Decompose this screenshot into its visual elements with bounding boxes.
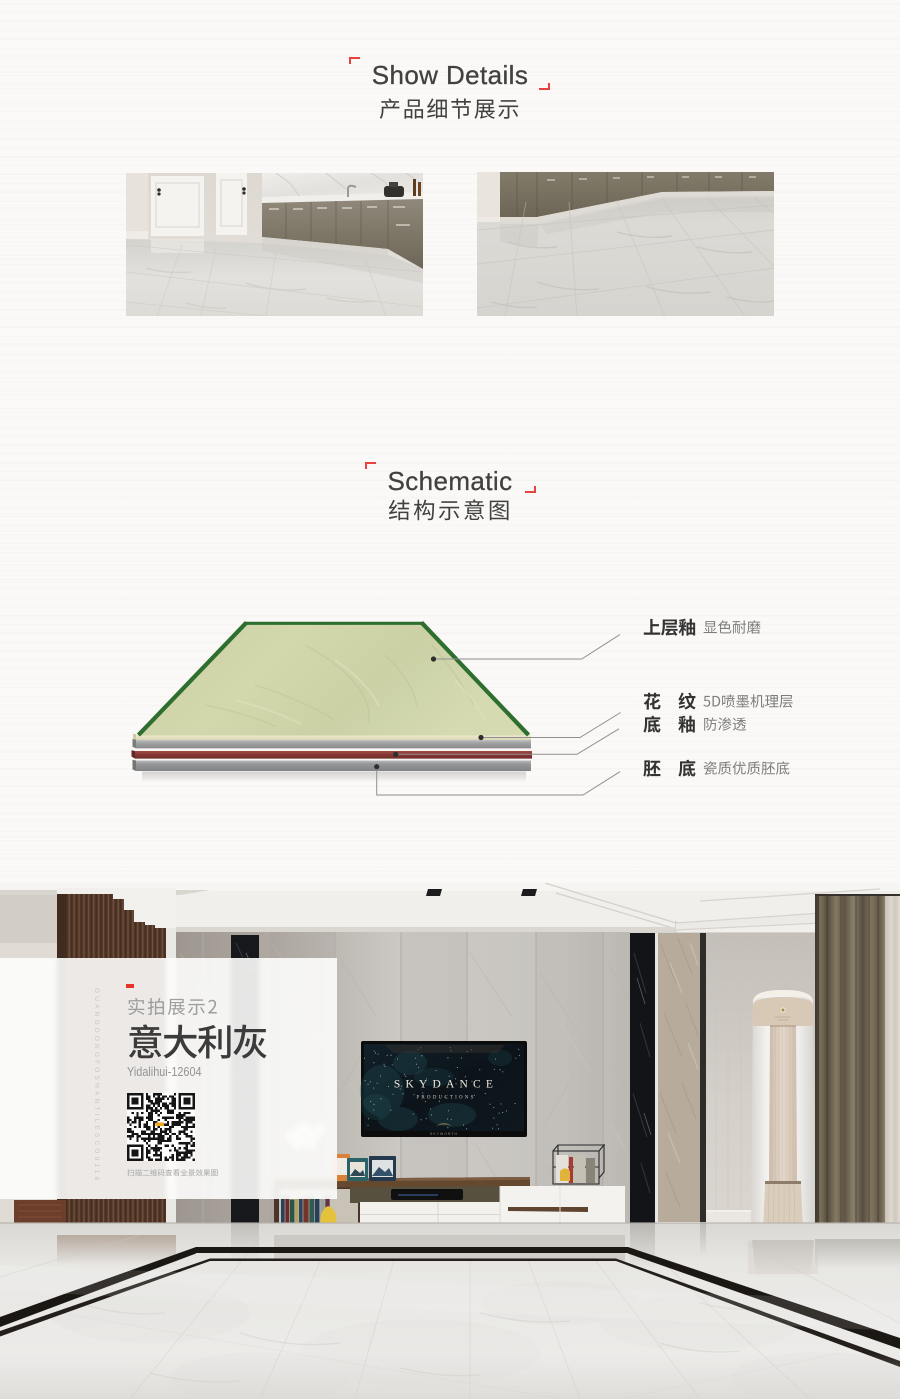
svg-text:SKYWORTH: SKYWORTH [430, 1132, 458, 1136]
svg-text:PRODUCTIONS: PRODUCTIONS [416, 1096, 475, 1101]
svg-text:SKYDANCE: SKYDANCE [394, 1079, 498, 1091]
